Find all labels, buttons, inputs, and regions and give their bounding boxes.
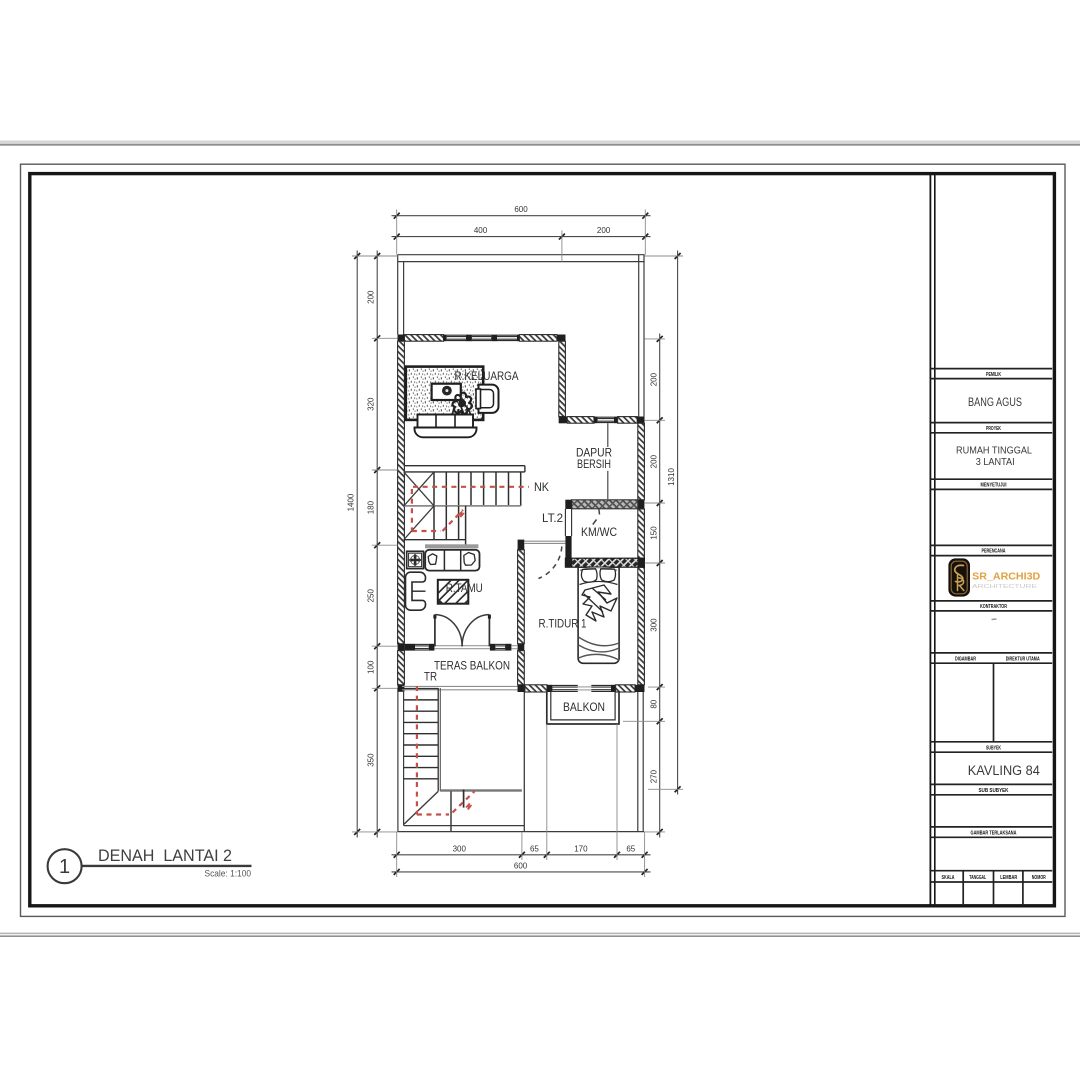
svg-text:180: 180 xyxy=(367,500,376,514)
svg-text:65: 65 xyxy=(626,844,635,853)
svg-text:200: 200 xyxy=(649,372,658,386)
svg-text:300: 300 xyxy=(649,618,658,632)
svg-text:RUMAH TINGGAL: RUMAH TINGGAL xyxy=(956,445,1032,456)
svg-text:3 LANTAI: 3 LANTAI xyxy=(976,457,1015,468)
svg-text:1: 1 xyxy=(59,856,70,878)
svg-text:400: 400 xyxy=(474,226,488,235)
svg-text:Scale: 1:100: Scale: 1:100 xyxy=(205,869,252,879)
svg-text:LEMBAR: LEMBAR xyxy=(1000,875,1017,881)
svg-text:270: 270 xyxy=(649,769,658,783)
svg-text:100: 100 xyxy=(367,660,376,674)
svg-text:200: 200 xyxy=(597,226,611,235)
svg-text:BERSIH: BERSIH xyxy=(577,457,611,471)
svg-text:R.TIDUR 1: R.TIDUR 1 xyxy=(539,617,587,631)
svg-text:KM/WC: KM/WC xyxy=(581,525,617,539)
svg-text:TERAS BALKON: TERAS BALKON xyxy=(434,658,510,672)
svg-text:GAMBAR TERLAKSANA: GAMBAR TERLAKSANA xyxy=(971,830,1017,836)
svg-text:80: 80 xyxy=(649,699,658,708)
svg-text:ARCHITECTURE: ARCHITECTURE xyxy=(972,584,1037,590)
svg-text:300: 300 xyxy=(453,844,467,853)
svg-text:BALKON: BALKON xyxy=(563,700,605,714)
svg-text:600: 600 xyxy=(514,205,528,214)
svg-text:R.TAMU: R.TAMU xyxy=(446,581,483,595)
svg-text:170: 170 xyxy=(574,844,588,853)
svg-text:NK: NK xyxy=(534,480,549,494)
svg-text:200: 200 xyxy=(649,454,658,468)
svg-text:DIGAMBAR: DIGAMBAR xyxy=(955,656,976,662)
svg-text:PERENCANA: PERENCANA xyxy=(982,549,1006,555)
svg-text:TR: TR xyxy=(424,669,437,683)
svg-text:KAVLING 84: KAVLING 84 xyxy=(968,763,1040,778)
svg-text:LT.2: LT.2 xyxy=(542,511,563,525)
svg-text:320: 320 xyxy=(367,397,376,411)
svg-text:PEMILIK: PEMILIK xyxy=(986,372,1001,378)
svg-text:NOMOR: NOMOR xyxy=(1032,875,1046,881)
svg-text:SUB SUBYEK: SUB SUBYEK xyxy=(979,788,1009,794)
svg-text:1310: 1310 xyxy=(667,468,676,486)
svg-text:65: 65 xyxy=(530,844,539,853)
svg-text:DIREKTUR UTAMA: DIREKTUR UTAMA xyxy=(1006,656,1040,662)
svg-text:BANG AGUS: BANG AGUS xyxy=(968,397,1022,409)
svg-text:PROYEK: PROYEK xyxy=(986,426,1001,432)
svg-text:SKALA: SKALA xyxy=(942,875,955,881)
svg-text:SR_ARCHI3D: SR_ARCHI3D xyxy=(972,572,1040,583)
svg-text:250: 250 xyxy=(367,588,376,602)
svg-text:KONTRAKTOR: KONTRAKTOR xyxy=(980,604,1007,610)
svg-text:SUBYEK: SUBYEK xyxy=(986,745,1001,751)
svg-text:350: 350 xyxy=(367,753,376,767)
svg-text:TANGGAL: TANGGAL xyxy=(969,875,986,881)
svg-text:600: 600 xyxy=(514,861,528,870)
svg-text:DENAH LANTAI 2: DENAH LANTAI 2 xyxy=(98,846,232,865)
svg-text:200: 200 xyxy=(367,290,376,304)
svg-text:R.KELUARGA: R.KELUARGA xyxy=(455,369,519,383)
svg-text:150: 150 xyxy=(649,526,658,540)
svg-text:MENYETUJUI: MENYETUJUI xyxy=(981,482,1007,488)
svg-text:1400: 1400 xyxy=(347,493,356,511)
